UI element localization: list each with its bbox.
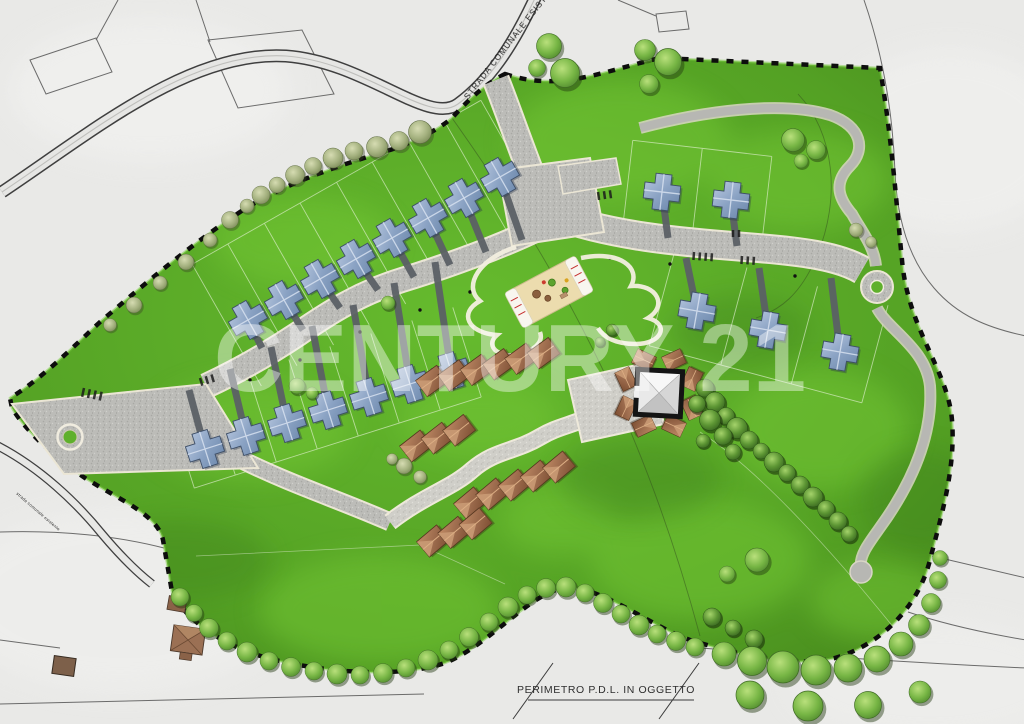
roundabout-east: [861, 271, 893, 303]
site-plan-page: STRADA COMUNALE ESISTE strada comunale e…: [0, 0, 1024, 724]
existing-building-outside: [52, 656, 76, 677]
legend-perimeter-label: PERIMETRO P.D.L. IN OGGETTO: [517, 684, 695, 696]
watermark-text: CENTURY 21: [214, 305, 806, 412]
roundabout-west: [55, 422, 85, 452]
cul-de-sac-bulb: [850, 561, 872, 583]
site-plan-map: STRADA COMUNALE ESISTE strada comunale e…: [0, 0, 1024, 724]
